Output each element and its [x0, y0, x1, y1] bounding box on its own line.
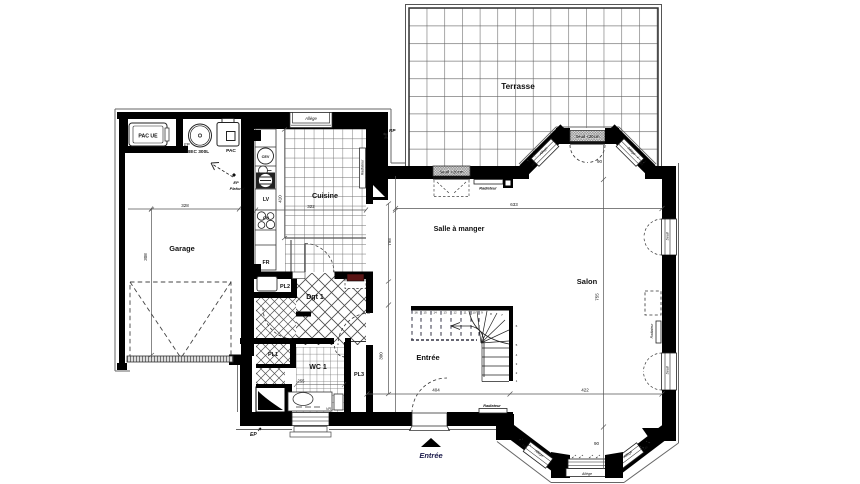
- svg-text:15: 15: [423, 311, 427, 315]
- svg-text:PAC UE: PAC UE: [138, 134, 158, 140]
- svg-text:Radiateur: Radiateur: [361, 159, 365, 175]
- svg-text:Terrasse: Terrasse: [501, 82, 535, 91]
- svg-text:90: 90: [597, 159, 603, 164]
- svg-text:Salle à manger: Salle à manger: [434, 224, 485, 233]
- svg-text:Plafond: Plafond: [230, 186, 245, 191]
- svg-text:RP: RP: [389, 128, 396, 133]
- svg-text:Garage: Garage: [169, 244, 194, 253]
- svg-text:Radiateur: Radiateur: [479, 187, 497, 191]
- svg-text:Allège: Allège: [581, 472, 592, 476]
- svg-text:798: 798: [387, 238, 392, 246]
- svg-text:Radiateur: Radiateur: [483, 404, 501, 408]
- svg-text:11: 11: [463, 311, 466, 315]
- svg-text:322: 322: [307, 204, 315, 209]
- svg-text:308: 308: [143, 253, 148, 261]
- svg-text:404: 404: [432, 388, 440, 393]
- svg-text:Seuil <20cm: Seuil <20cm: [575, 134, 600, 139]
- svg-text:CU: CU: [263, 216, 269, 221]
- svg-text:BEC 300L: BEC 300L: [187, 149, 209, 155]
- svg-text:Seuil: Seuil: [666, 232, 670, 240]
- svg-text:Entrée: Entrée: [419, 451, 442, 460]
- svg-text:VR: VR: [326, 407, 331, 411]
- svg-text:PL1: PL1: [268, 352, 278, 358]
- svg-text:Allège: Allège: [304, 116, 317, 121]
- svg-text:Seuil: Seuil: [666, 366, 670, 374]
- svg-text:Radiateur: Radiateur: [650, 323, 654, 339]
- svg-text:PL2: PL2: [280, 284, 290, 290]
- svg-text:255: 255: [298, 379, 306, 384]
- svg-text:14: 14: [433, 311, 437, 315]
- svg-text:755: 755: [595, 293, 600, 301]
- svg-text:10: 10: [472, 311, 476, 315]
- svg-text:328: 328: [181, 203, 189, 208]
- svg-text:633: 633: [510, 202, 518, 207]
- svg-text:WC 1: WC 1: [309, 364, 327, 371]
- svg-text:PAC: PAC: [226, 148, 236, 154]
- svg-text:300: 300: [379, 352, 384, 360]
- svg-text:EP: EP: [184, 142, 190, 147]
- svg-text:CEV: CEV: [262, 155, 270, 159]
- svg-text:Dgt 1: Dgt 1: [306, 294, 324, 301]
- svg-text:Entrée: Entrée: [416, 353, 439, 362]
- svg-text:12: 12: [453, 311, 457, 315]
- svg-text:Seuil <20cm: Seuil <20cm: [439, 170, 464, 175]
- svg-text:FR: FR: [263, 260, 270, 266]
- svg-text:LV: LV: [263, 197, 270, 203]
- svg-text:13: 13: [443, 311, 447, 315]
- svg-text:90: 90: [594, 441, 600, 446]
- svg-text:422: 422: [581, 388, 589, 393]
- svg-text:410: 410: [278, 195, 283, 203]
- svg-text:Salon: Salon: [577, 277, 598, 286]
- svg-text:Cuisine: Cuisine: [312, 191, 338, 200]
- svg-text:16: 16: [414, 311, 418, 315]
- svg-text:PL3: PL3: [354, 372, 364, 378]
- svg-text:EP: EP: [233, 180, 239, 185]
- svg-text:EP: EP: [250, 432, 257, 438]
